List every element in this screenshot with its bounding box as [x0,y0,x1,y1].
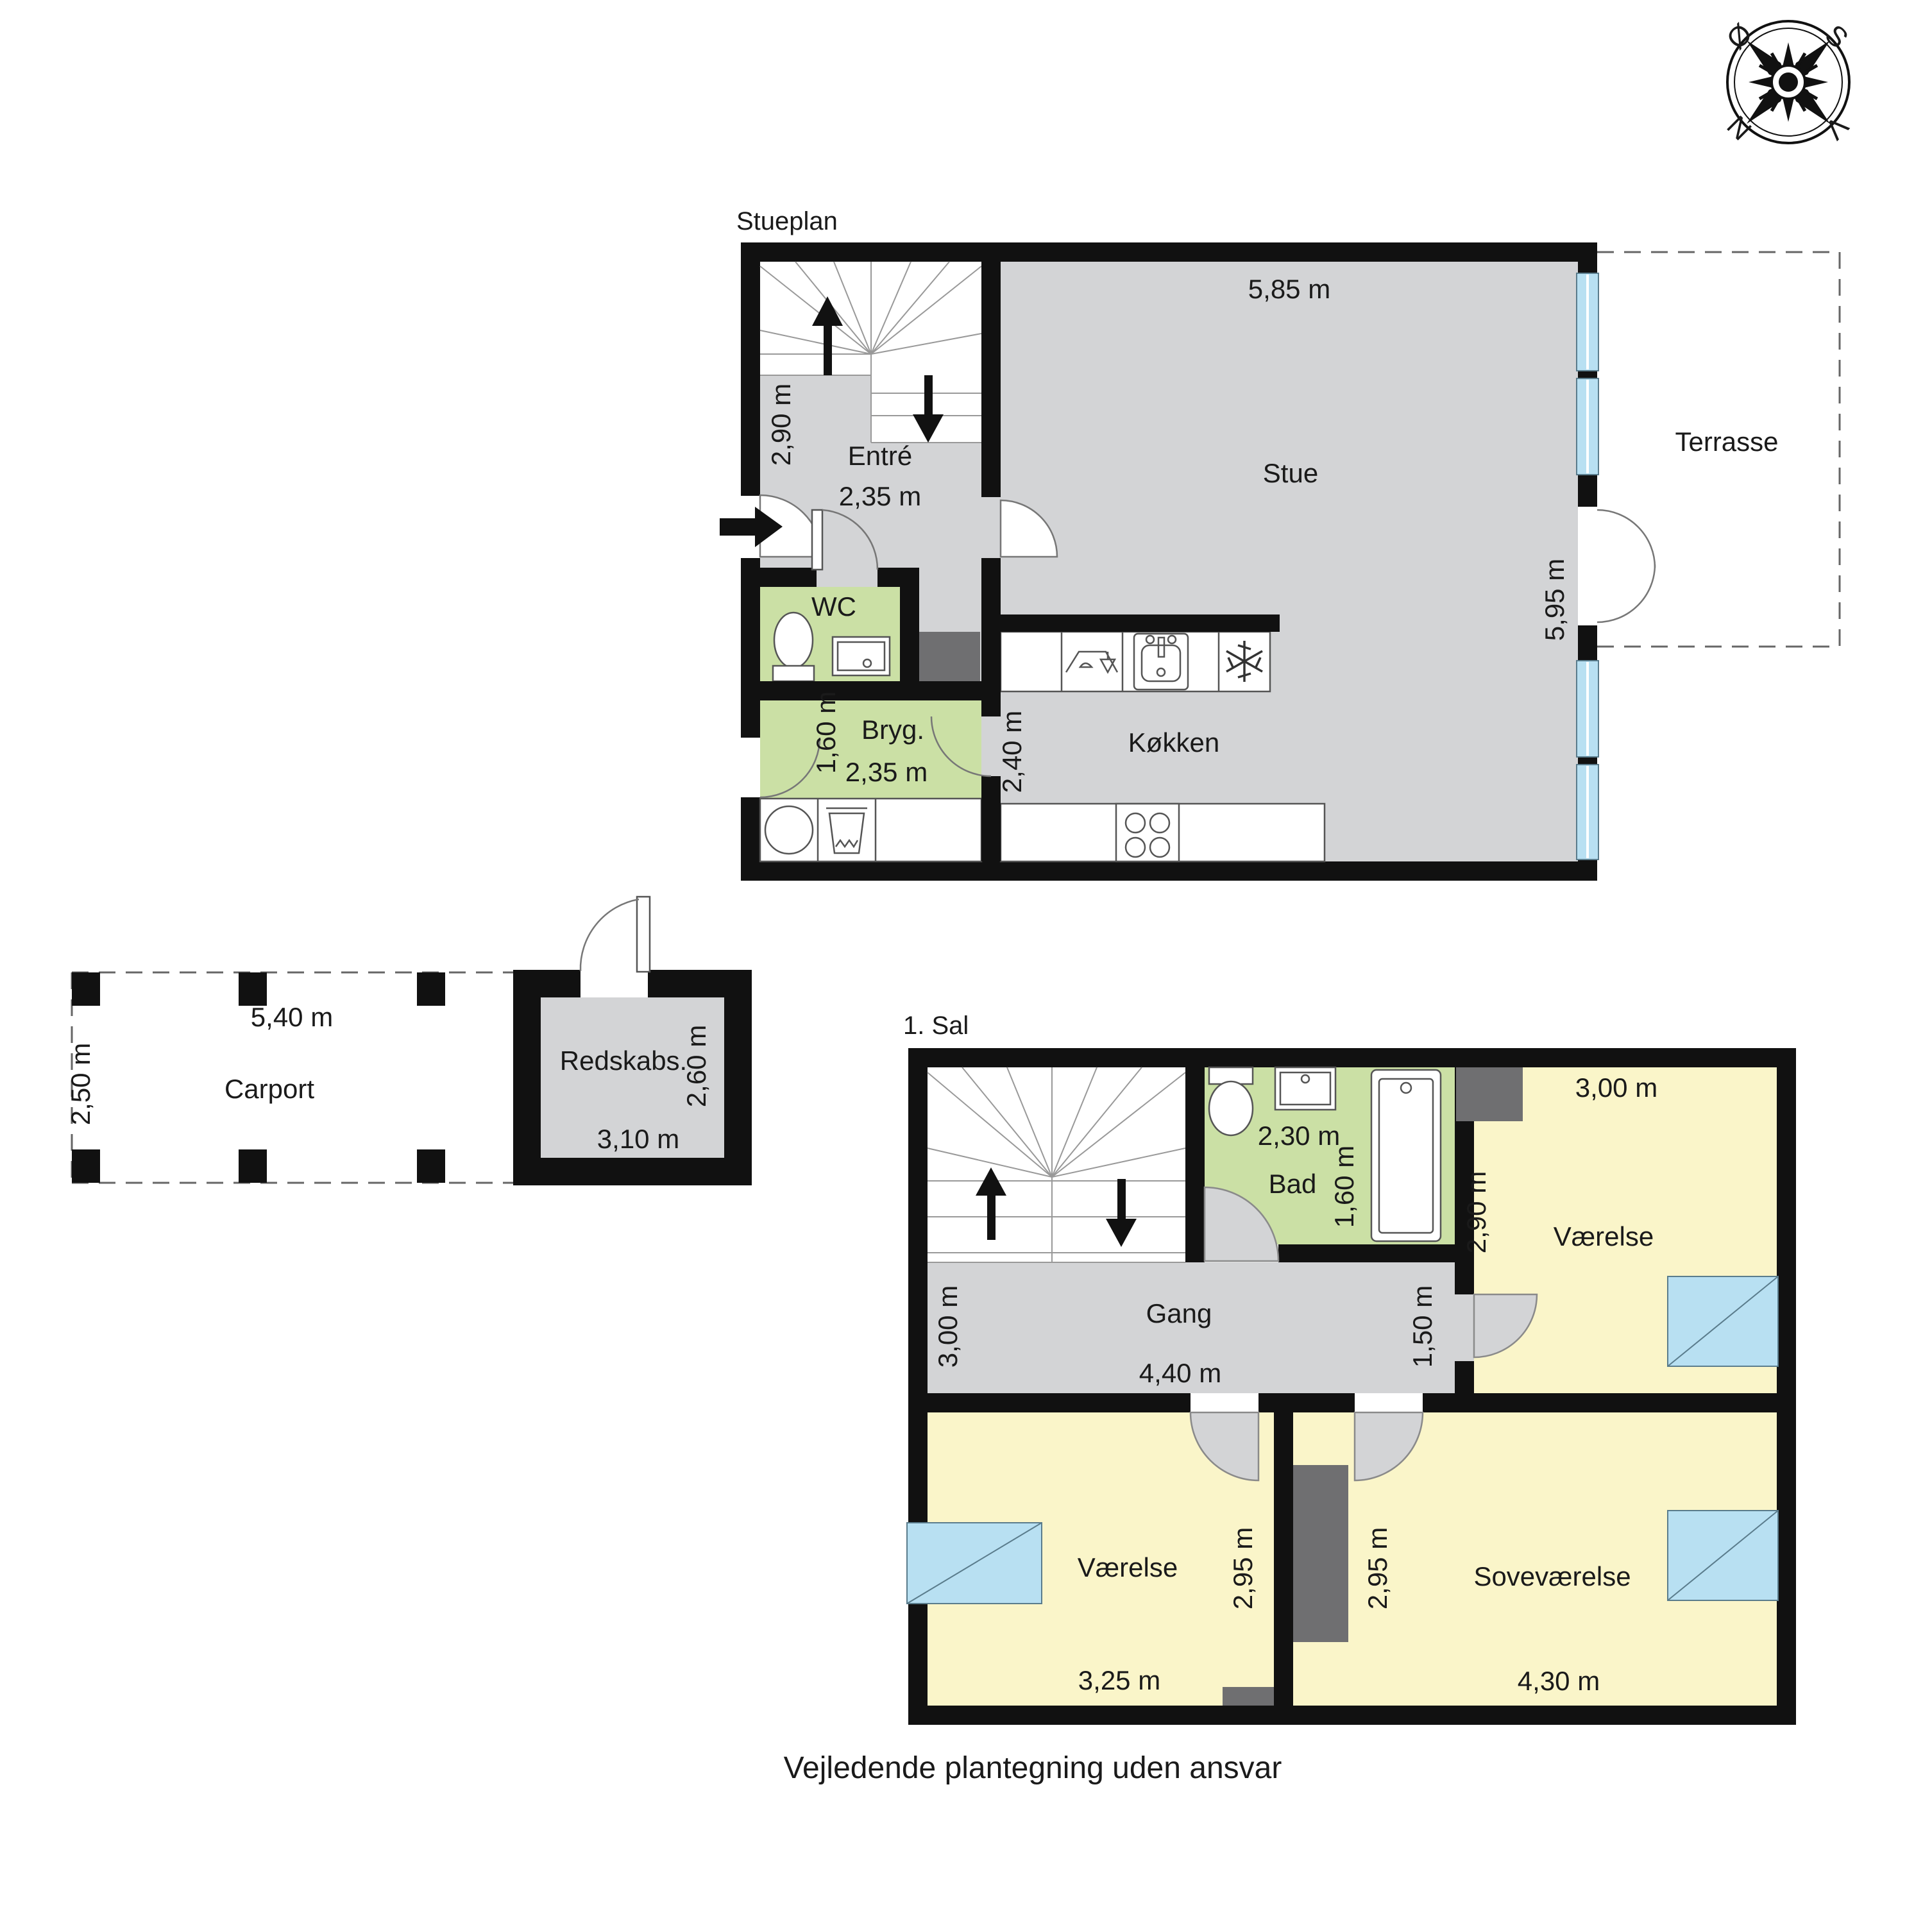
kitchen-sink-icon [1134,634,1188,690]
bryg-side-door-opening [741,738,760,797]
entre-width-label: 2,35 m [839,481,921,511]
stue-width-label: 5,85 m [1248,274,1330,304]
shed-door-opening [580,970,648,997]
wc-toilet-icon [773,613,814,681]
entre-height-label: 2,90 m [766,384,796,466]
vaerelse-sw-height-label: 2,95 m [1228,1527,1258,1609]
bryg-height-label: 1,60 m [811,691,841,774]
vaerelse-sw-door-opening [1191,1393,1258,1412]
washing-machine-icon [765,806,813,854]
gang-width-label: 4,40 m [1139,1358,1221,1388]
bryg-width-label: 2,35 m [845,757,928,787]
sovevaerelse-window [1668,1511,1778,1600]
carport-label: Carport [225,1074,314,1104]
first-floor-title: 1. Sal [903,1012,969,1040]
shed-height-label: 2,60 m [681,1025,711,1107]
sovevaerelse-label: Soveværelse [1473,1561,1631,1591]
terrace-french-doors [1597,510,1655,622]
carport: 5,40 m Carport 2,50 m [65,972,513,1183]
disclaimer-text: Vejledende plantegning uden ansvar [784,1751,1282,1785]
gang-corridor-label: 1,50 m [1407,1285,1437,1368]
carport-height-label: 2,50 m [65,1043,96,1125]
bad-label: Bad [1269,1169,1317,1199]
gang-height-label: 3,00 m [933,1285,963,1368]
first-chimney-ne [1456,1067,1523,1121]
vaerelse-ne-height-label: 2,90 m [1461,1171,1491,1253]
terrasse-label: Terrasse [1675,427,1778,457]
bad-sink-icon [1275,1067,1335,1110]
shed: Redskabs. 2,60 m 3,10 m [513,897,752,1185]
sovevaerelse-height-label: 2,95 m [1362,1527,1393,1609]
vaerelse-ne-window [1668,1276,1778,1366]
sovevaerelse-width-label: 4,30 m [1518,1666,1600,1696]
terrace-door-opening [1578,507,1597,625]
compass-east-label: Ø [1721,18,1759,56]
ground-chimney [919,632,980,690]
carport-width-label: 5,40 m [251,1002,333,1032]
entre-label: Entré [848,441,912,471]
floorplan-page: Ø S V N Stueplan [0,0,1932,1932]
compass-star-icon [1747,40,1830,124]
vaerelse-sw-window [907,1523,1042,1604]
vaerelse-ne-label: Værelse [1554,1221,1654,1251]
gang-corridor [1455,1294,1474,1361]
kokken-label: Køkken [1128,727,1219,758]
floorplan-drawing: Ø S V N Stueplan [0,0,1932,1932]
bad-toilet-icon [1209,1067,1253,1135]
wc-label: WC [811,591,856,622]
compass-north-label: N [1721,109,1758,146]
bryg-label: Bryg. [861,715,924,745]
vaerelse-sw-width-label: 3,25 m [1078,1665,1160,1695]
first-chimney-stub [1223,1687,1274,1706]
bathtub-icon [1371,1070,1441,1241]
stue-label: Stue [1263,458,1318,488]
wc-sink-icon [833,637,890,675]
vaerelse-sw-label: Værelse [1078,1552,1178,1582]
first-floor-plan: 1. Sal [903,1012,1796,1725]
sovevaerelse-door-opening [1355,1393,1423,1412]
shed-label: Redskabs. [560,1046,687,1076]
ground-floor-plan: Stueplan [720,207,1840,881]
shed-door [580,897,650,972]
vaerelse-ne-width-label: 3,00 m [1575,1072,1657,1103]
first-staircase [928,1067,1185,1262]
stue-height-label: 5,95 m [1539,559,1570,641]
compass-rose: Ø S V N [1721,18,1854,146]
kokken-height-label: 2,40 m [997,711,1027,793]
bad-width-label: 2,30 m [1258,1121,1340,1151]
ground-floor-title: Stueplan [736,207,838,235]
bad-height-label: 1,60 m [1329,1146,1359,1228]
stove-icon [1116,804,1179,861]
shed-width-label: 3,10 m [597,1124,679,1154]
first-chimney-column [1293,1465,1348,1642]
gang-label: Gang [1146,1298,1212,1328]
